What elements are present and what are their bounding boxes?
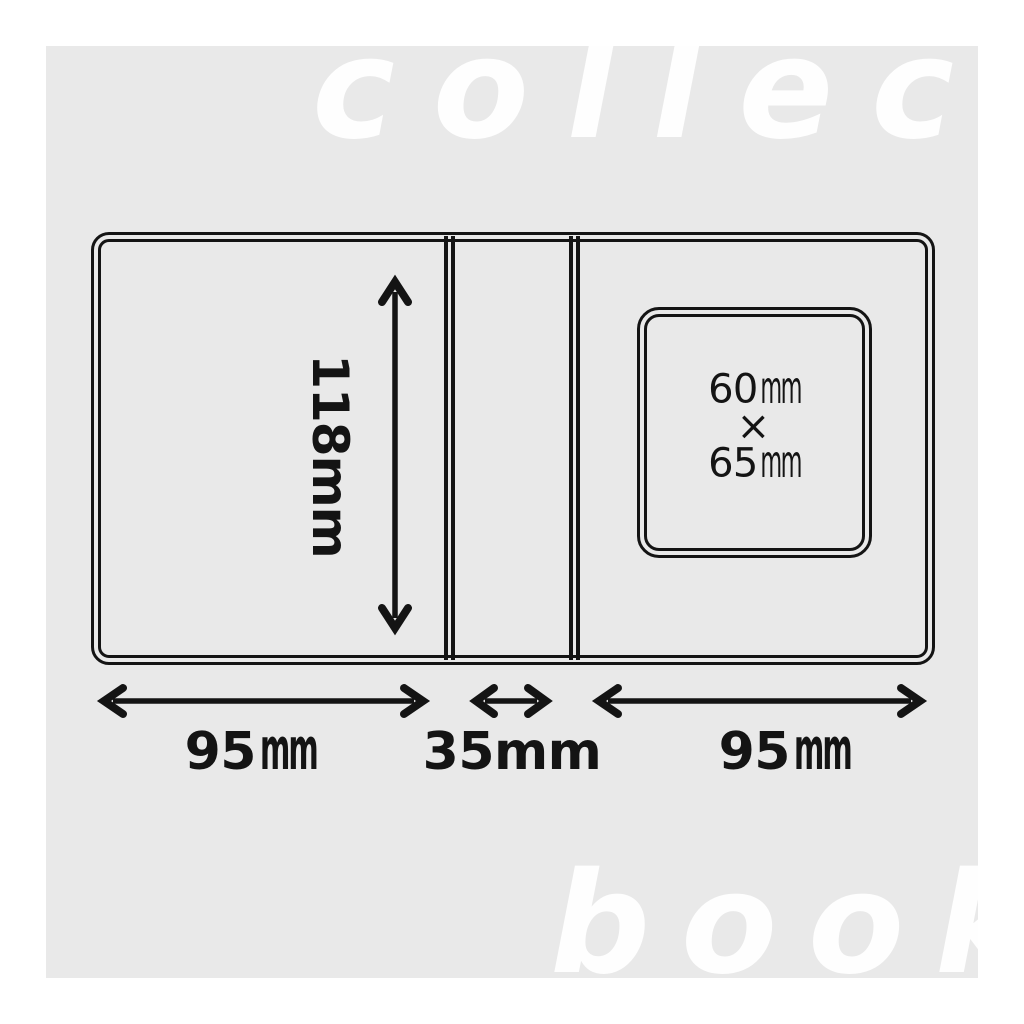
right-cover-width-value: 95 — [719, 722, 790, 782]
left-cover-width-label: 95mm — [185, 722, 316, 782]
window-height-unit: mm — [761, 442, 802, 483]
height-value: 118 — [301, 354, 359, 455]
height-arrow — [382, 282, 408, 628]
spine-width-unit: mm — [494, 722, 601, 782]
height-dimension-label: 118mm — [301, 354, 359, 558]
left-cover-width-arrow — [104, 688, 423, 714]
right-cover-width-arrow — [599, 688, 920, 714]
dimension-arrows — [0, 0, 1024, 1024]
window-dimension-label: 60mm × 65mm — [708, 372, 798, 483]
window-height-value: 65 — [708, 441, 757, 487]
window-height-line: 65mm — [708, 446, 798, 483]
height-unit: mm — [301, 456, 359, 558]
spine-width-label: 35mm — [423, 722, 602, 782]
product-dimension-image: collect book 118mm — [0, 0, 1024, 1024]
window-width-unit: mm — [761, 368, 802, 409]
spine-width-arrow — [476, 688, 546, 714]
right-cover-width-label: 95mm — [719, 722, 850, 782]
spine-width-value: 35 — [423, 722, 494, 782]
right-cover-width-unit: mm — [794, 717, 851, 784]
left-cover-width-unit: mm — [260, 717, 317, 784]
left-cover-width-value: 95 — [185, 722, 256, 782]
